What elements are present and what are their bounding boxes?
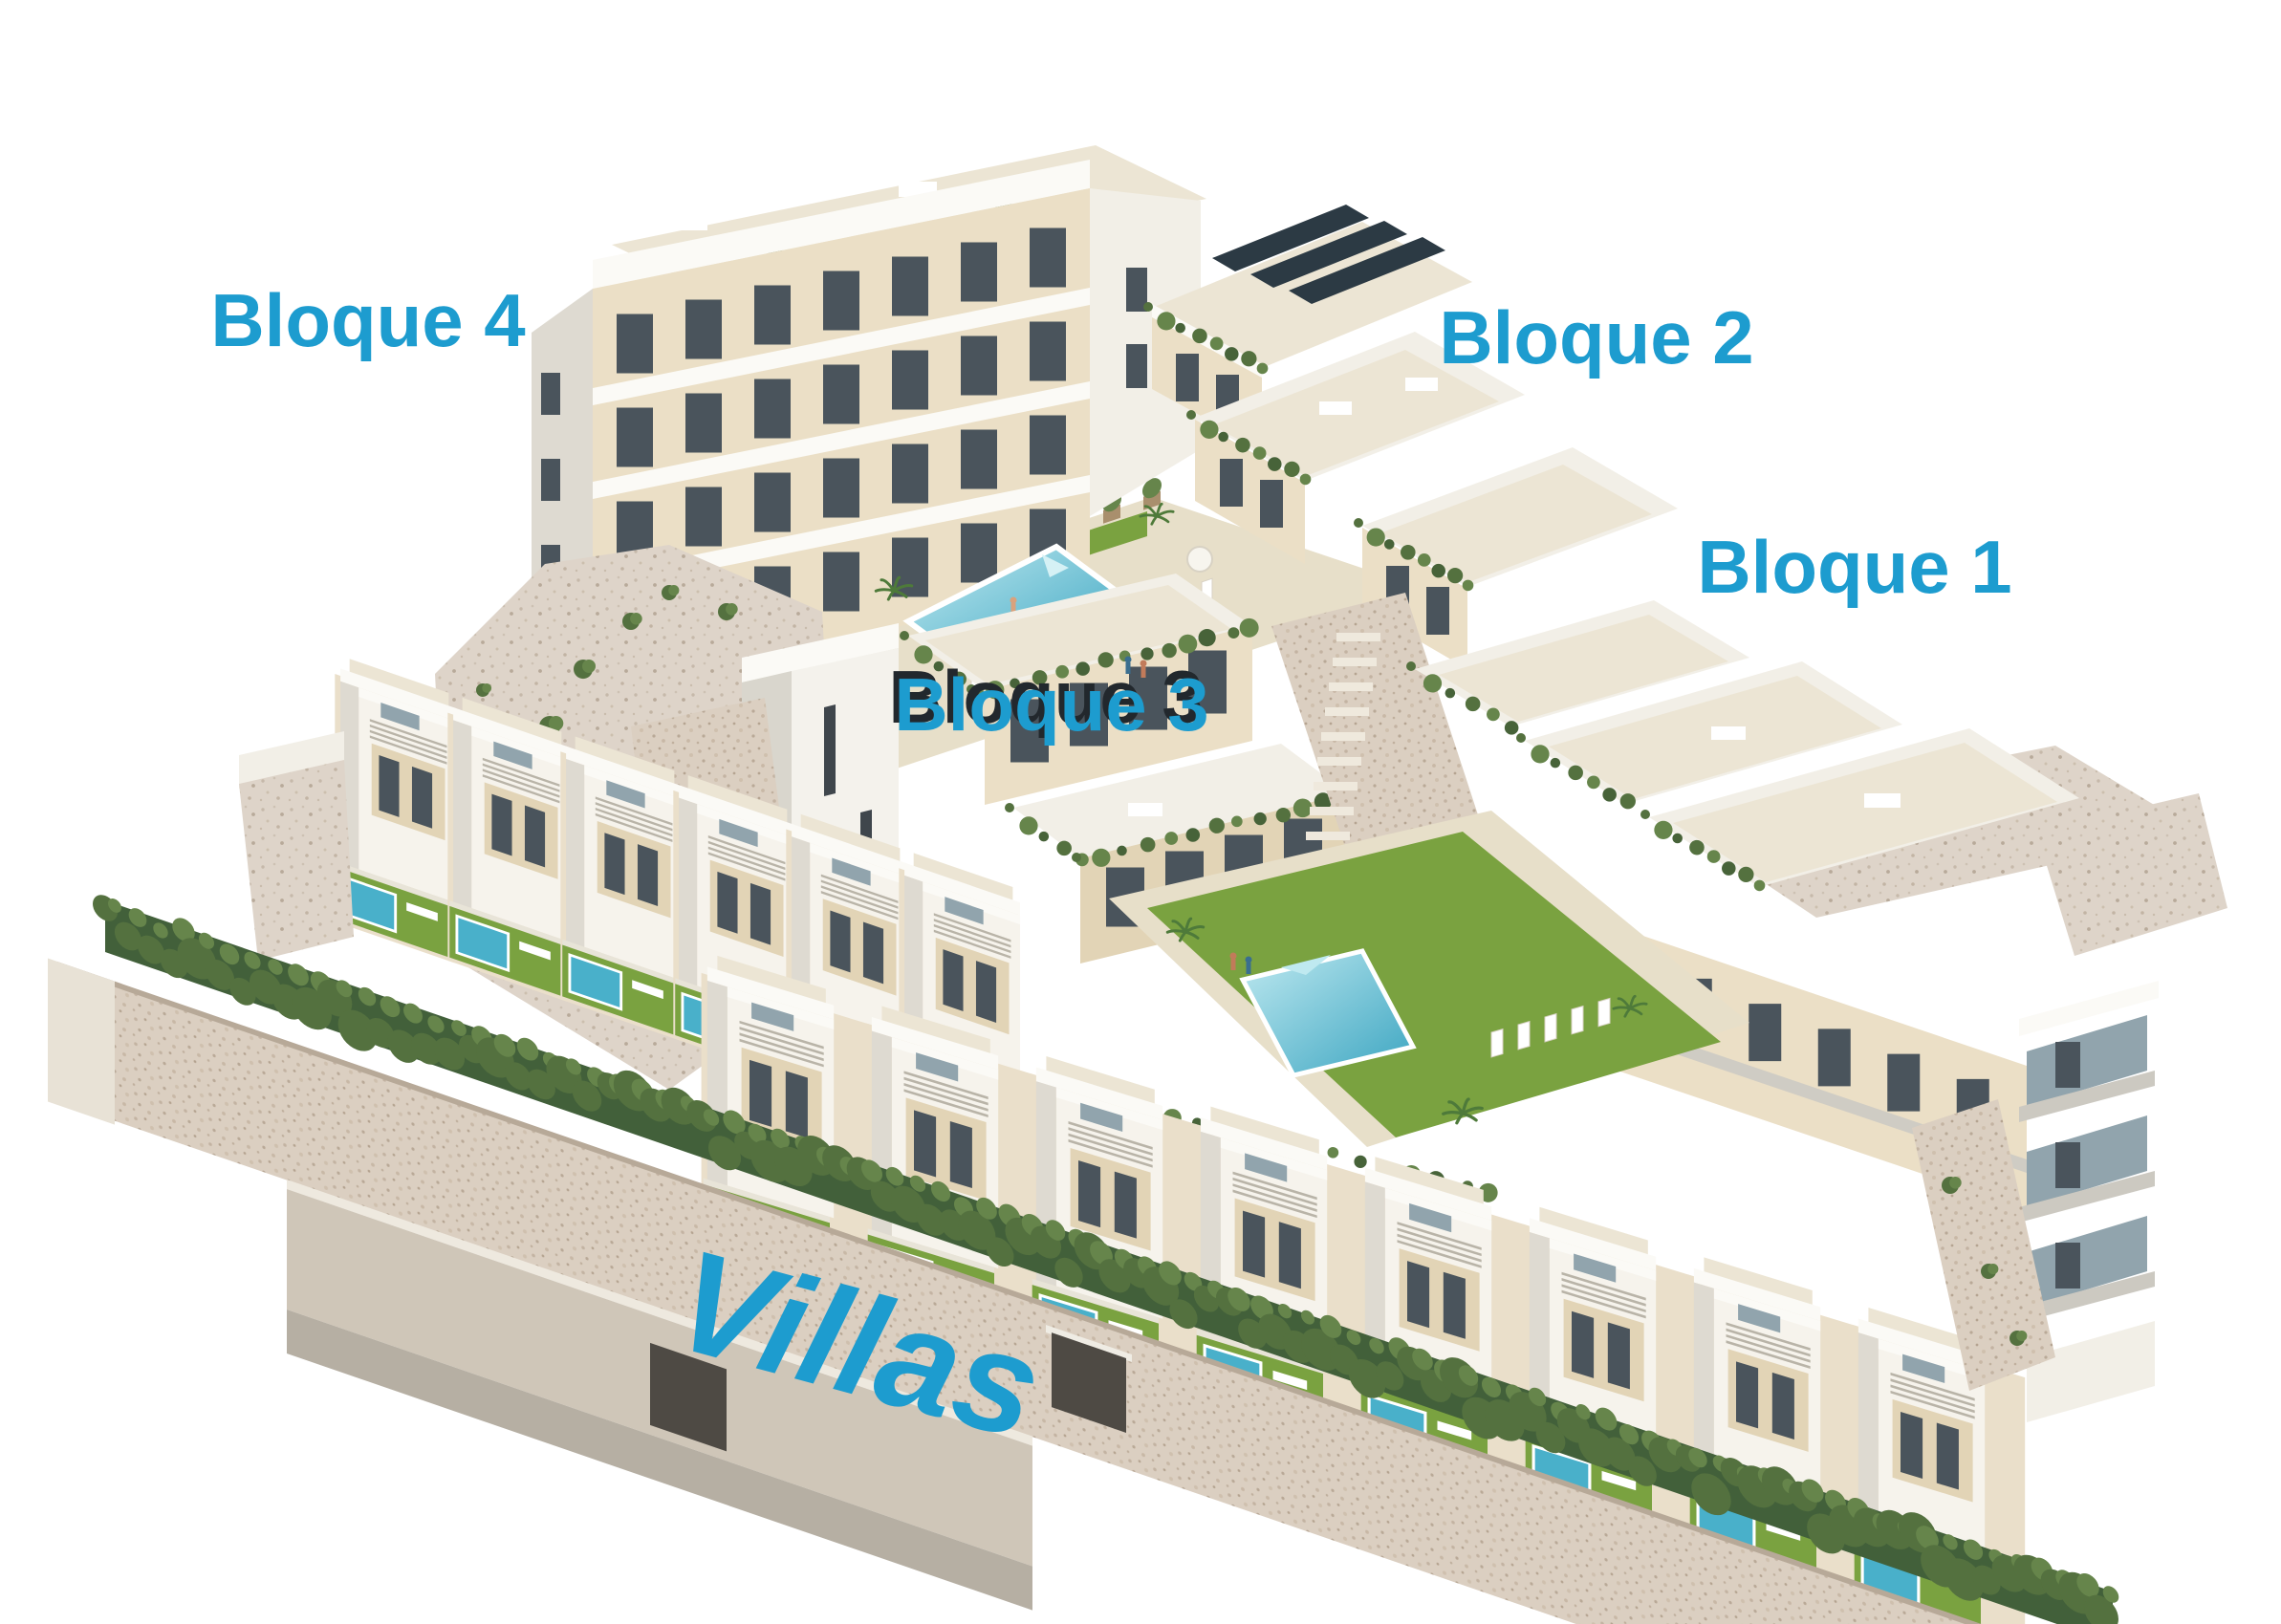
site-plan-illustration: Bloque 4 Bloque 2 Bloque 1 Bloque 3 Bloq…	[0, 0, 2281, 1624]
label-bloque-4: Bloque 4	[210, 278, 525, 362]
left-end	[239, 731, 354, 961]
label-bloque-3: Bloque 3	[894, 662, 1208, 747]
render-canvas: Bloque 4 Bloque 2 Bloque 1 Bloque 3 Bloq…	[0, 0, 2281, 1624]
label-bloque-1: Bloque 1	[1697, 525, 2011, 609]
site-illustration	[48, 145, 2237, 1624]
label-bloque-2: Bloque 2	[1439, 295, 1753, 379]
